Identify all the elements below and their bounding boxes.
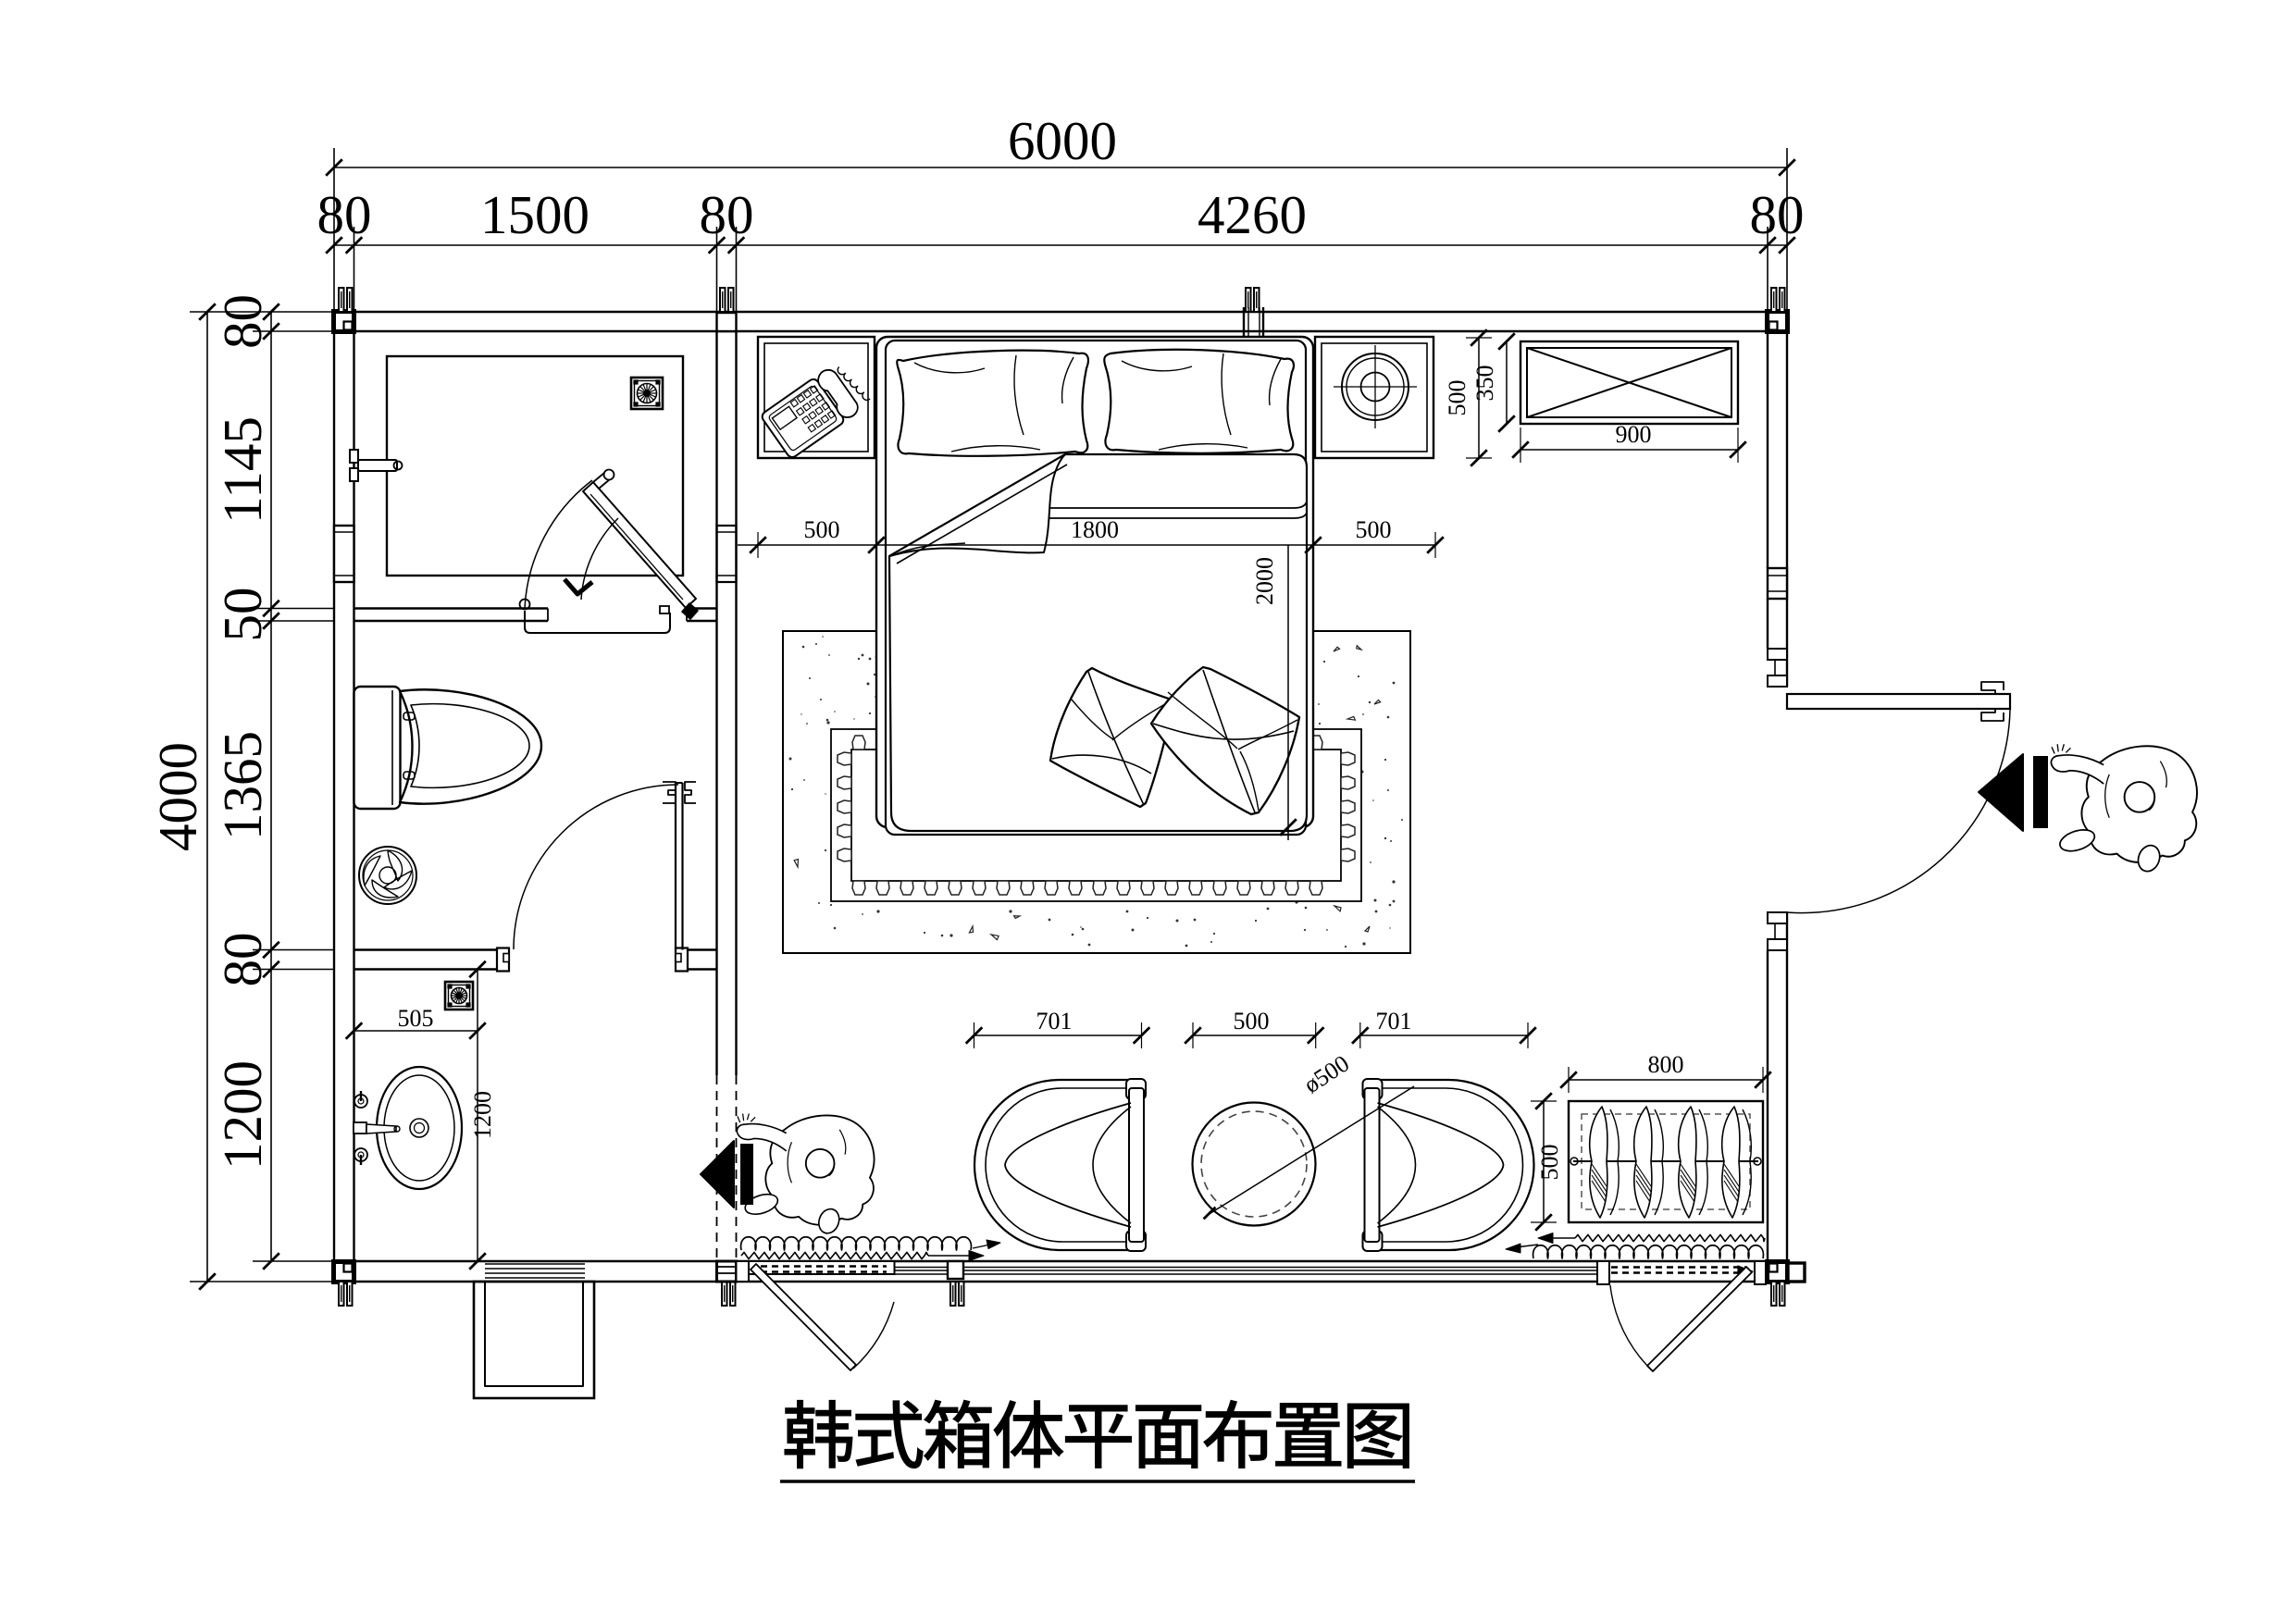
svg-text:1145: 1145	[212, 416, 273, 524]
svg-text:6000: 6000	[1008, 110, 1117, 171]
svg-text:500: 500	[804, 516, 840, 543]
svg-text:80: 80	[212, 294, 273, 349]
svg-text:80: 80	[1750, 184, 1805, 245]
svg-text:350: 350	[1471, 365, 1498, 402]
svg-text:4000: 4000	[147, 742, 208, 851]
svg-text:80: 80	[700, 184, 754, 245]
svg-text:500: 500	[1444, 380, 1471, 416]
svg-text:1800: 1800	[1071, 516, 1119, 543]
svg-text:500: 500	[1356, 516, 1392, 543]
svg-text:1200: 1200	[469, 1091, 496, 1139]
svg-text:701: 701	[1376, 1008, 1412, 1035]
svg-text:1500: 1500	[480, 184, 590, 245]
svg-text:800: 800	[1648, 1051, 1684, 1078]
svg-text:1365: 1365	[212, 731, 273, 840]
svg-text:4260: 4260	[1198, 184, 1307, 245]
svg-text:701: 701	[1036, 1008, 1073, 1035]
svg-text:500: 500	[1536, 1145, 1563, 1181]
svg-text:900: 900	[1616, 421, 1652, 448]
svg-text:1200: 1200	[212, 1060, 273, 1170]
svg-text:500: 500	[1234, 1008, 1270, 1035]
svg-text:80: 80	[317, 184, 372, 245]
svg-text:2000: 2000	[1251, 557, 1278, 605]
svg-text:50: 50	[212, 588, 273, 642]
svg-text:80: 80	[212, 933, 273, 987]
svg-text:505: 505	[398, 1005, 434, 1032]
